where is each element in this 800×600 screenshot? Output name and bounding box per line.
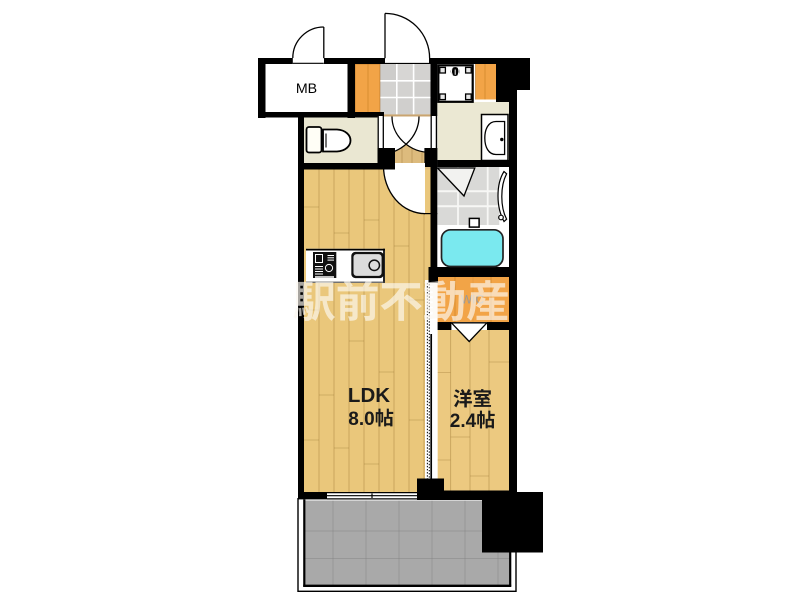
svg-text:MB: MB <box>296 81 317 97</box>
svg-text:8.0: 8.0 <box>348 409 374 430</box>
svg-text:2.4: 2.4 <box>450 411 477 432</box>
svg-text:LDK: LDK <box>348 384 390 407</box>
